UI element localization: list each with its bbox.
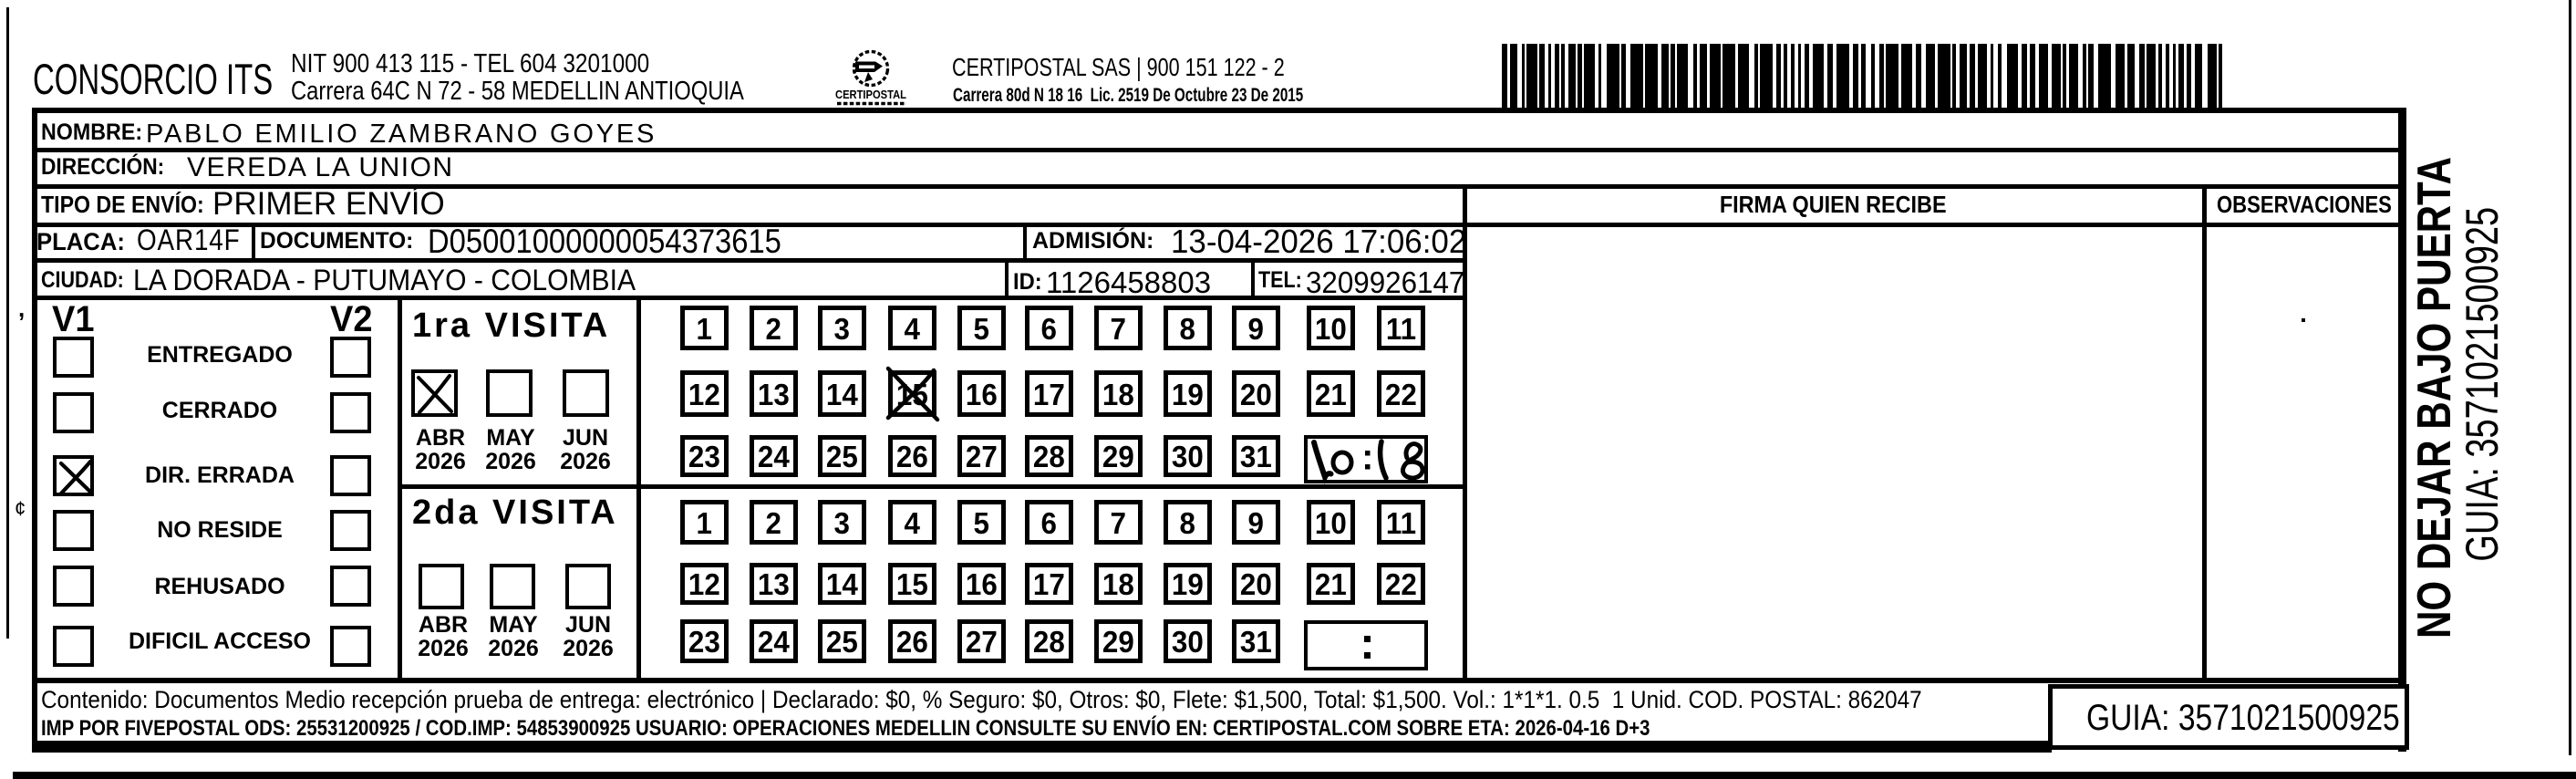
- svg-text:CERTIPOSTAL: CERTIPOSTAL: [835, 88, 906, 101]
